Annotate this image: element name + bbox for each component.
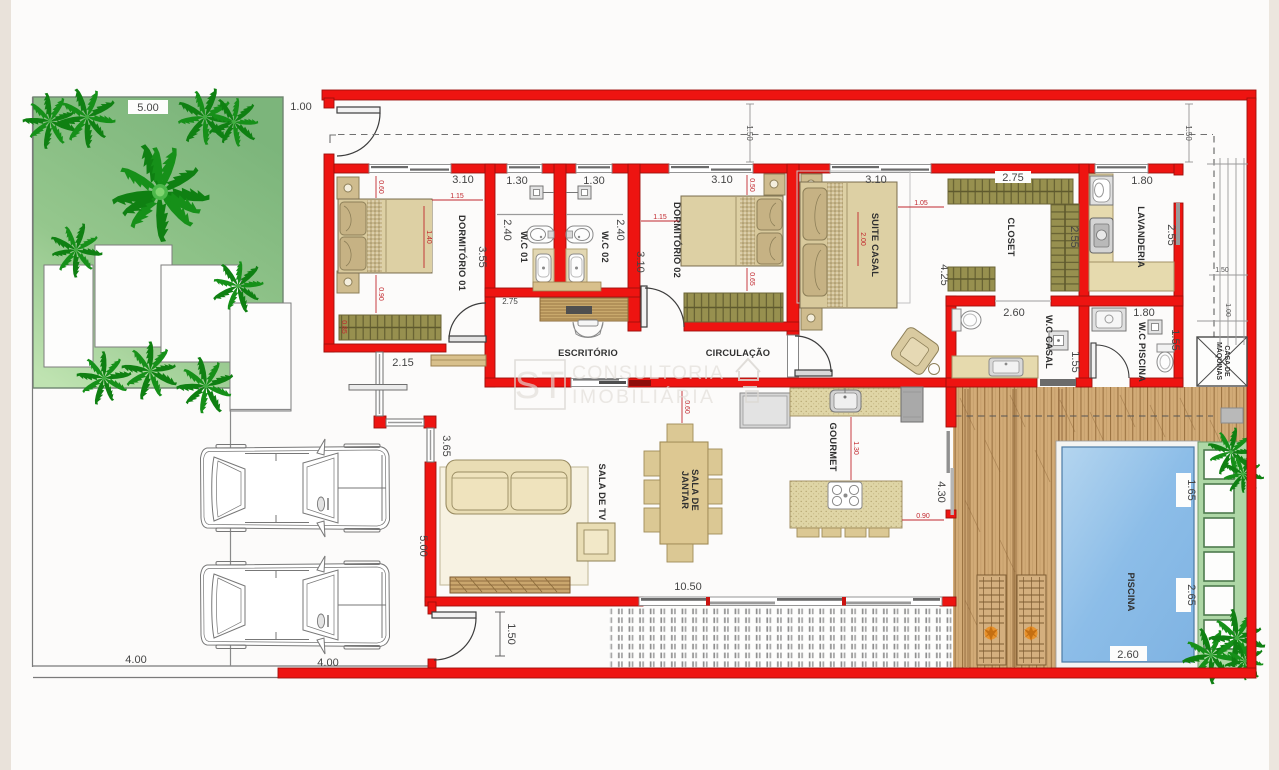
svg-text:1.55: 1.55 <box>1169 329 1181 350</box>
svg-text:5.00: 5.00 <box>417 535 429 556</box>
svg-text:0.90: 0.90 <box>377 287 384 301</box>
svg-text:W.C 02: W.C 02 <box>600 231 610 263</box>
svg-text:GOURMET: GOURMET <box>828 423 838 472</box>
svg-text:2.60: 2.60 <box>1117 649 1138 661</box>
svg-text:2.40: 2.40 <box>501 219 513 240</box>
svg-text:SALA DEJANTAR: SALA DEJANTAR <box>680 469 700 511</box>
svg-text:PISCINA: PISCINA <box>1126 572 1136 611</box>
svg-text:4.30: 4.30 <box>935 481 947 502</box>
svg-text:DORMITÓRIO 02: DORMITÓRIO 02 <box>672 202 683 278</box>
svg-text:10.50: 10.50 <box>674 581 702 593</box>
svg-text:1.15: 1.15 <box>450 193 464 200</box>
svg-text:LAVANDERIA: LAVANDERIA <box>1136 206 1146 268</box>
svg-text:4.00: 4.00 <box>125 654 146 666</box>
svg-text:2.00: 2.00 <box>859 232 866 246</box>
svg-text:3.10: 3.10 <box>865 174 886 186</box>
svg-text:1.15: 1.15 <box>653 214 667 221</box>
svg-text:W.C 01: W.C 01 <box>519 231 529 263</box>
svg-text:2.75: 2.75 <box>1002 172 1023 184</box>
svg-text:1.50: 1.50 <box>1184 125 1193 141</box>
svg-text:2.15: 2.15 <box>392 357 413 369</box>
svg-text:2.65: 2.65 <box>1185 584 1197 605</box>
svg-text:1.00: 1.00 <box>290 101 311 113</box>
svg-text:ST: ST <box>515 365 566 407</box>
svg-text:CONSULTORIA: CONSULTORIA <box>572 362 724 384</box>
svg-text:4.00: 4.00 <box>317 657 338 669</box>
svg-text:2.55: 2.55 <box>1165 224 1177 245</box>
svg-text:IMOBILIÁRIA: IMOBILIÁRIA <box>572 385 715 408</box>
svg-text:1.05: 1.05 <box>914 200 928 207</box>
svg-text:1.80: 1.80 <box>1133 307 1154 319</box>
svg-text:2.40: 2.40 <box>614 219 626 240</box>
svg-text:1.30: 1.30 <box>583 175 604 187</box>
svg-text:0.50: 0.50 <box>748 178 755 192</box>
svg-text:1.40: 1.40 <box>425 230 432 244</box>
svg-text:3.10: 3.10 <box>711 174 732 186</box>
svg-text:1.50: 1.50 <box>1215 267 1229 274</box>
svg-text:CASA DEMÁQUINAS: CASA DEMÁQUINAS <box>1215 342 1230 380</box>
svg-text:W.C PISCINA: W.C PISCINA <box>1137 322 1147 382</box>
svg-text:3.65: 3.65 <box>440 435 452 456</box>
svg-text:SUITE CASAL: SUITE CASAL <box>870 213 880 277</box>
svg-text:2.55: 2.55 <box>1068 226 1080 247</box>
svg-text:1.55: 1.55 <box>1069 351 1081 372</box>
svg-text:3.10: 3.10 <box>452 174 473 186</box>
svg-text:1.80: 1.80 <box>1131 175 1152 187</box>
svg-text:0.90: 0.90 <box>916 513 930 520</box>
svg-text:0.85: 0.85 <box>340 320 347 334</box>
svg-text:1.30: 1.30 <box>506 175 527 187</box>
svg-text:1.50: 1.50 <box>505 623 517 644</box>
svg-text:5.00: 5.00 <box>137 102 158 114</box>
svg-text:0.60: 0.60 <box>377 180 384 194</box>
svg-text:3.10: 3.10 <box>634 251 646 272</box>
svg-text:CLOSET: CLOSET <box>1006 218 1016 257</box>
svg-text:SALA DE TV: SALA DE TV <box>597 464 607 522</box>
svg-text:1.65: 1.65 <box>1185 479 1197 500</box>
svg-text:DORMITÓRIO 01: DORMITÓRIO 01 <box>457 215 468 291</box>
svg-text:2.75: 2.75 <box>502 297 518 306</box>
svg-text:0.65: 0.65 <box>748 272 755 286</box>
svg-text:2.60: 2.60 <box>1003 307 1024 319</box>
svg-text:1.50: 1.50 <box>745 125 754 141</box>
svg-text:ESCRITÓRIO: ESCRITÓRIO <box>558 347 618 358</box>
svg-text:1.30: 1.30 <box>852 441 859 455</box>
svg-text:W.C CASAL: W.C CASAL <box>1044 315 1054 369</box>
svg-text:3.55: 3.55 <box>476 246 488 267</box>
svg-text:1.00: 1.00 <box>1224 303 1231 317</box>
svg-text:CIRCULAÇÃO: CIRCULAÇÃO <box>706 348 771 358</box>
